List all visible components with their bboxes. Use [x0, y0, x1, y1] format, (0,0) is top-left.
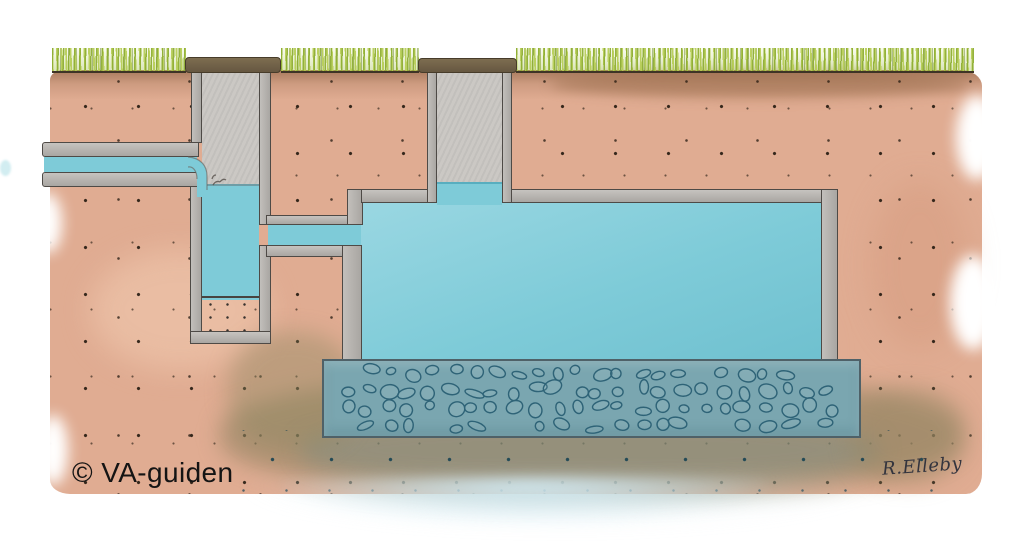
soil-texture-blotch: [550, 70, 970, 98]
chamber-right-wall-lower: [259, 245, 271, 334]
inspection-shaft-right-wall: [502, 70, 512, 203]
groundwater-wash: [282, 479, 768, 525]
gravel-bed: [322, 359, 861, 438]
copyright-text: © VA-guiden: [72, 457, 234, 489]
paint-smudge: [0, 160, 11, 176]
tank-top-wall-left: [361, 189, 430, 203]
chamber-right-wall-upper: [259, 70, 271, 225]
chamber-bottom-wall: [190, 331, 271, 344]
grass-strip: [281, 48, 419, 73]
inlet-pipe-bottom-wall: [42, 172, 201, 187]
tank-right-wall: [821, 189, 838, 363]
connecting-pipe-bottom-wall: [266, 245, 353, 257]
inspection-shaft-water: [437, 182, 502, 205]
inlet-pipe-water: [44, 157, 197, 172]
inspection-shaft-lid: [418, 58, 517, 73]
tank-left-wall-lower: [342, 245, 362, 363]
paper-edge: [34, 193, 62, 253]
gravel-stones: [324, 361, 859, 436]
inspection-shaft-interior: [437, 70, 502, 184]
chamber-lid: [185, 57, 281, 73]
chamber-left-wall-upper: [191, 70, 202, 143]
illustration-canvas: © VA-guiden R.Elleby: [0, 0, 1024, 548]
paper-edge: [950, 255, 996, 350]
grass-strip: [52, 48, 186, 73]
paper-edge: [956, 95, 998, 180]
paper-edge: [38, 415, 68, 485]
tank-top-wall-right: [509, 189, 838, 203]
connecting-pipe-water: [268, 225, 363, 245]
inlet-pipe-top-wall: [42, 142, 199, 157]
inlet-waterfall: [188, 152, 258, 212]
chamber-sludge: [202, 296, 259, 333]
inspection-shaft-left-wall: [427, 70, 437, 203]
connecting-pipe-top-wall: [266, 215, 353, 225]
tank-water: [361, 201, 823, 363]
grass-strip: [516, 48, 974, 73]
